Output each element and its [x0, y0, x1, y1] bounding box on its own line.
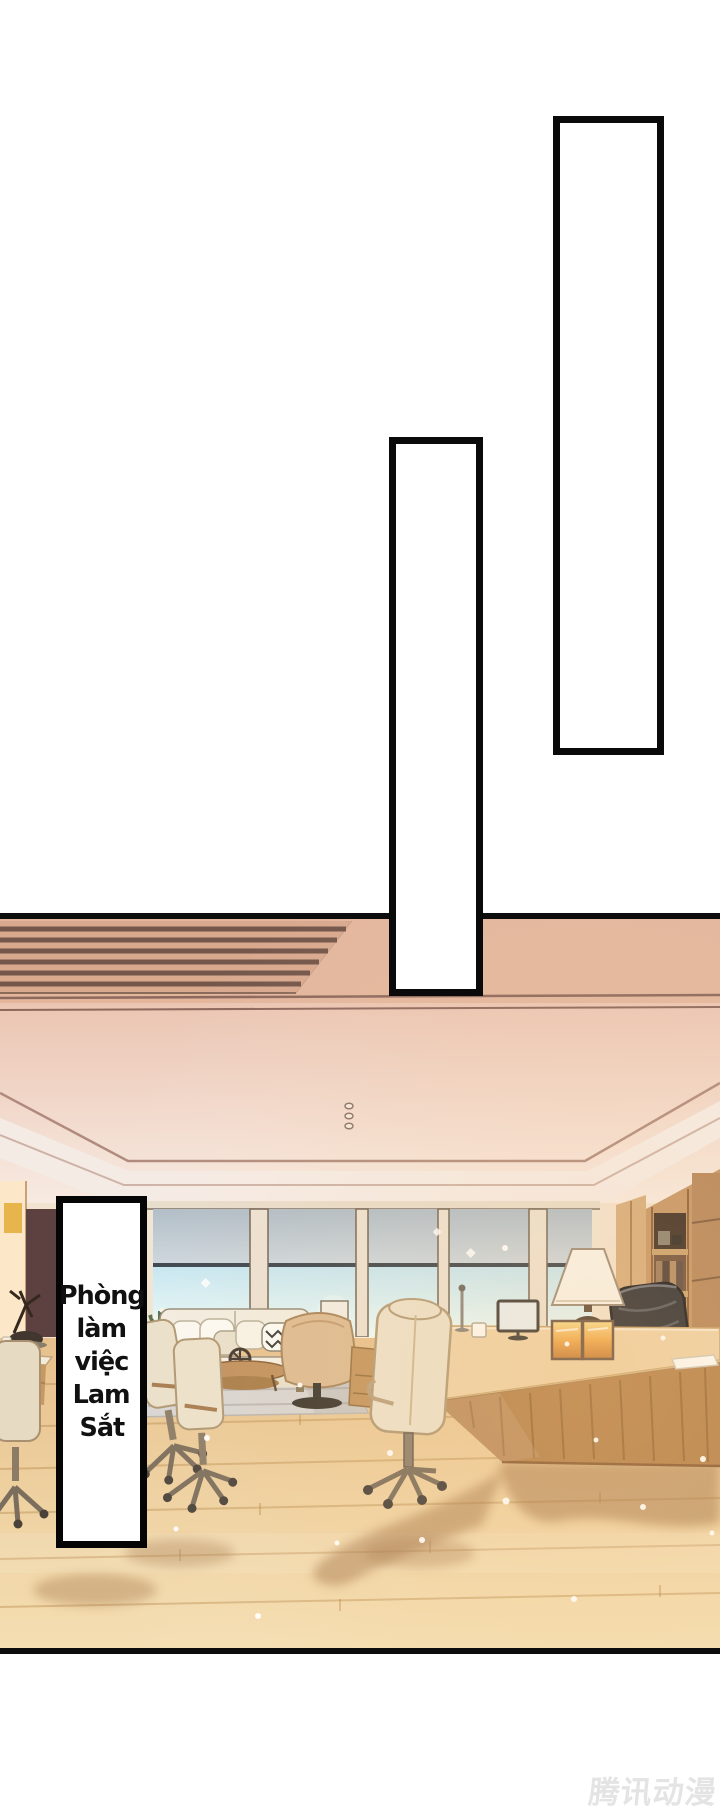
caption-line: Phòng — [59, 1283, 145, 1309]
location-caption-box: Phòng làm việc Lam Sắt — [56, 1196, 147, 1548]
caption-line: việc — [75, 1349, 129, 1375]
comic-page: Phòng làm việc Lam Sắt 腾讯动漫 — [0, 0, 720, 1812]
speech-box-empty-middle — [389, 437, 483, 996]
panel-border-top — [0, 913, 720, 919]
caption-line: làm — [77, 1316, 127, 1342]
caption-line: Lam — [73, 1382, 130, 1408]
speech-box-empty-right — [553, 116, 664, 755]
tencent-comics-watermark: 腾讯动漫 — [587, 1767, 720, 1812]
caption-line: Sắt — [79, 1415, 124, 1441]
panel-border-bottom — [0, 1648, 720, 1654]
